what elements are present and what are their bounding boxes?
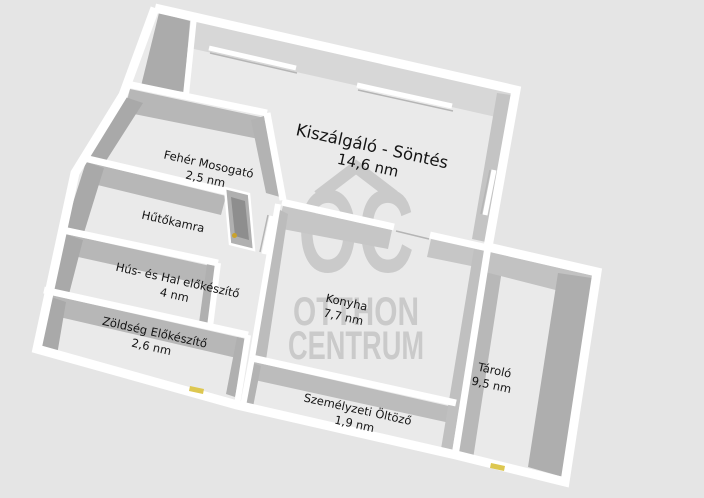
watermark-line2: CENTRUM [288,324,424,368]
door-handle-icon [232,233,237,238]
floor-plan-viewer: OC OTTHON CENTRUM [0,0,704,498]
watermark-logo: OC [298,166,414,298]
door-icon [225,188,254,250]
watermark: OC OTTHON CENTRUM [288,166,424,368]
